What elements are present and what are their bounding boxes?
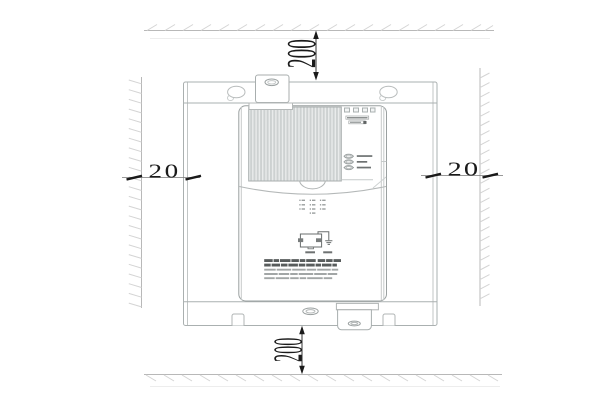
svg-text:20: 20 xyxy=(448,158,481,180)
svg-text:20: 20 xyxy=(149,160,181,182)
svg-text:200: 200 xyxy=(265,338,311,362)
svg-text:200: 200 xyxy=(278,39,324,68)
